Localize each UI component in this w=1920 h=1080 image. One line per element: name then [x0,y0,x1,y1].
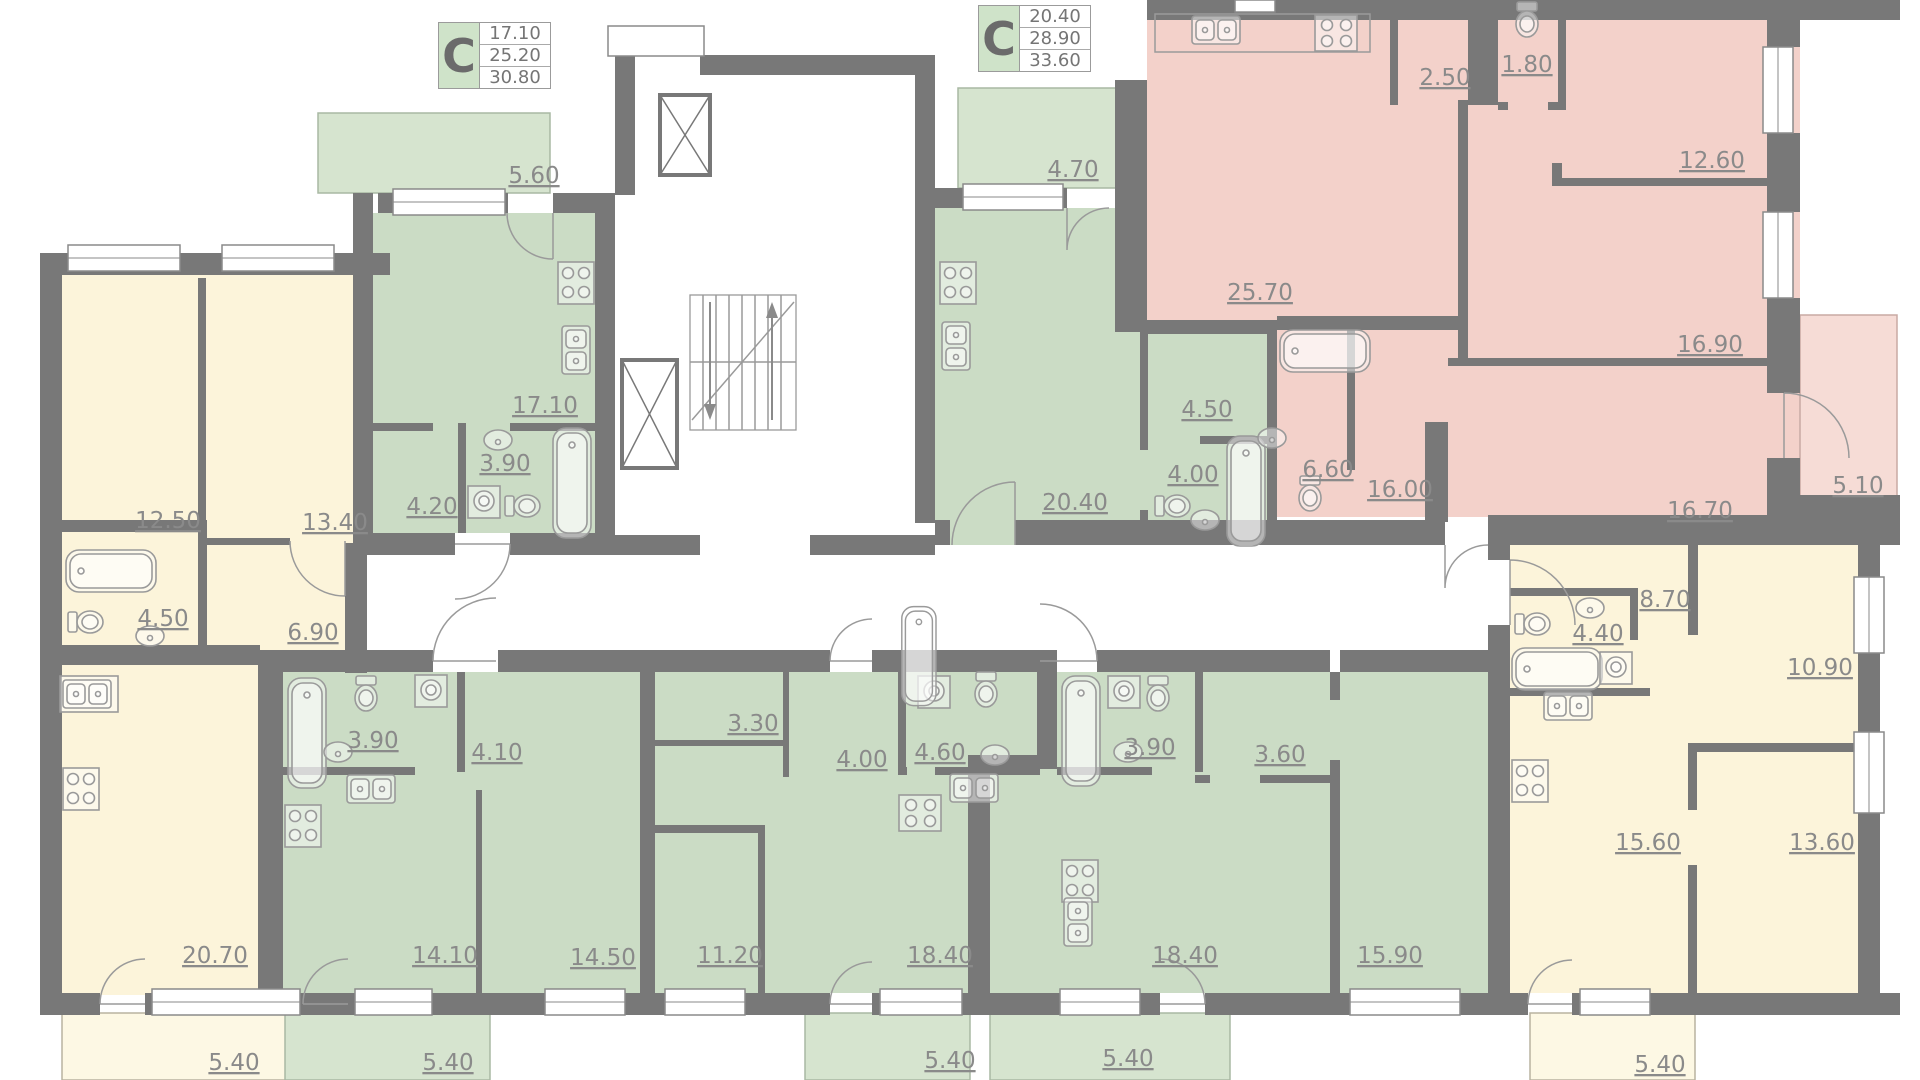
floor-plan: 12.50 13.40 4.50 6.90 20.70 5.40 5.60 17… [0,0,1920,1080]
room-area-label: 3.90 [479,451,530,477]
stove-icon [63,768,99,810]
room-area-label: 6.60 [1302,457,1353,483]
sink-icon [484,430,512,450]
legend-area-value: 33.60 [1020,50,1090,71]
washing-machine-icon [415,675,447,707]
legend-area-values: 17.10 25.20 30.80 [480,23,550,88]
room-area-label: 4.70 [1047,157,1098,183]
kitchen-sink-icon [63,680,111,708]
room-area-label: 4.10 [471,740,522,766]
room-area-label: 3.30 [727,711,778,737]
stove-icon [558,262,594,304]
room-area-label: 5.40 [208,1050,259,1076]
stove-icon [899,795,941,831]
kitchen-sink-icon [1064,898,1092,946]
legend-area-value: 30.80 [480,67,550,88]
room-area-label: 5.40 [1634,1052,1685,1078]
room-area-label: 15.90 [1357,943,1423,969]
room-left-yellow-upper [60,265,355,655]
room-area-label: 4.40 [1572,621,1623,647]
room-area-label: 15.60 [1615,830,1681,856]
room-area-label: 16.90 [1677,332,1743,358]
room-area-label: 5.60 [508,163,559,189]
room-area-label: 3.60 [1254,742,1305,768]
apartment-type-legend-left: C 17.10 25.20 30.80 [438,22,551,89]
sink-icon [1576,598,1604,618]
bathtub-icon [1280,330,1370,372]
stove-icon [1062,860,1098,902]
legend-area-value: 28.90 [1020,28,1090,50]
kitchen-sink-icon [562,326,590,374]
room-area-label: 14.50 [570,945,636,971]
bathtub-icon [1512,648,1602,690]
room-area-label: 12.50 [135,508,201,534]
room-area-label: 13.40 [302,510,368,536]
sink-icon [1191,510,1219,530]
bathtub-icon [288,678,326,788]
toilet-icon [1155,495,1190,517]
room-area-label: 18.40 [1152,943,1218,969]
balcony-pink [1800,315,1897,497]
room-area-label: 3.90 [1124,735,1175,761]
room-area-label: 8.70 [1639,587,1690,613]
elevator-shaft-icon [660,95,710,175]
room-area-label: 13.60 [1789,830,1855,856]
elevator-shaft-icon [622,360,677,468]
stove-icon [285,805,321,847]
room-area-label: 17.10 [512,393,578,419]
room-area-label: 14.10 [412,943,478,969]
room-area-label: 10.90 [1787,655,1853,681]
apartment-type-letter: C [439,23,480,88]
bathtub-icon [902,607,936,706]
toilet-icon [355,676,377,711]
room-area-label: 5.10 [1832,473,1883,499]
toilet-icon [1147,676,1169,711]
room-area-label: 1.80 [1501,52,1552,78]
room-area-label: 4.20 [406,494,457,520]
staircase [690,295,796,430]
room-area-label: 2.50 [1419,65,1470,91]
apartment-type-letter: C [979,6,1020,71]
room-area-label: 5.40 [422,1050,473,1076]
floor-plan-drawing: 12.50 13.40 4.50 6.90 20.70 5.40 5.60 17… [0,0,1920,1080]
bathtub-icon [1062,676,1100,786]
apartment-type-legend-right: C 20.40 28.90 33.60 [978,5,1091,72]
room-area-label: 4.00 [836,747,887,773]
kitchen-sink-icon [347,775,395,803]
bathtub-icon [66,550,156,592]
toilet-icon [68,611,103,633]
legend-area-value: 17.10 [480,23,550,45]
bathtub-icon [1227,436,1265,546]
kitchen-sink-icon [942,322,970,370]
legend-area-value: 20.40 [1020,6,1090,28]
room-area-label: 4.50 [137,606,188,632]
bathtub-icon [553,428,591,538]
room-area-label: 16.70 [1667,498,1733,524]
legend-area-value: 25.20 [480,45,550,67]
legend-area-values: 20.40 28.90 33.60 [1020,6,1090,71]
room-area-label: 4.60 [914,740,965,766]
stove-icon [1315,15,1357,51]
room-area-label: 18.40 [907,943,973,969]
kitchen-sink-icon [950,774,998,802]
kitchen-sink-icon [1544,692,1592,720]
sink-icon [981,745,1009,765]
room-area-label: 3.90 [347,728,398,754]
stove-icon [940,262,976,304]
room-area-label: 16.00 [1367,477,1433,503]
room-area-label: 25.70 [1227,280,1293,306]
stove-icon [1512,760,1548,802]
washing-machine-icon [1108,676,1140,708]
toilet-icon [1516,2,1538,37]
toilet-icon [505,495,540,517]
room-area-label: 6.90 [287,620,338,646]
washing-machine-icon [468,486,500,518]
toilet-icon [975,672,997,707]
room-area-label: 20.70 [182,943,248,969]
entrance-porch [608,26,704,56]
washing-machine-icon [1600,652,1632,684]
room-area-label: 4.50 [1181,397,1232,423]
room-area-label: 12.60 [1679,148,1745,174]
toilet-icon [1515,613,1550,635]
room-area-label: 4.00 [1167,462,1218,488]
room-area-label: 20.40 [1042,490,1108,516]
room-area-label: 5.40 [1102,1046,1153,1072]
room-area-label: 11.20 [697,943,763,969]
sink-icon [1258,428,1286,448]
kitchen-sink-icon [1192,16,1240,44]
room-area-label: 5.40 [924,1048,975,1074]
